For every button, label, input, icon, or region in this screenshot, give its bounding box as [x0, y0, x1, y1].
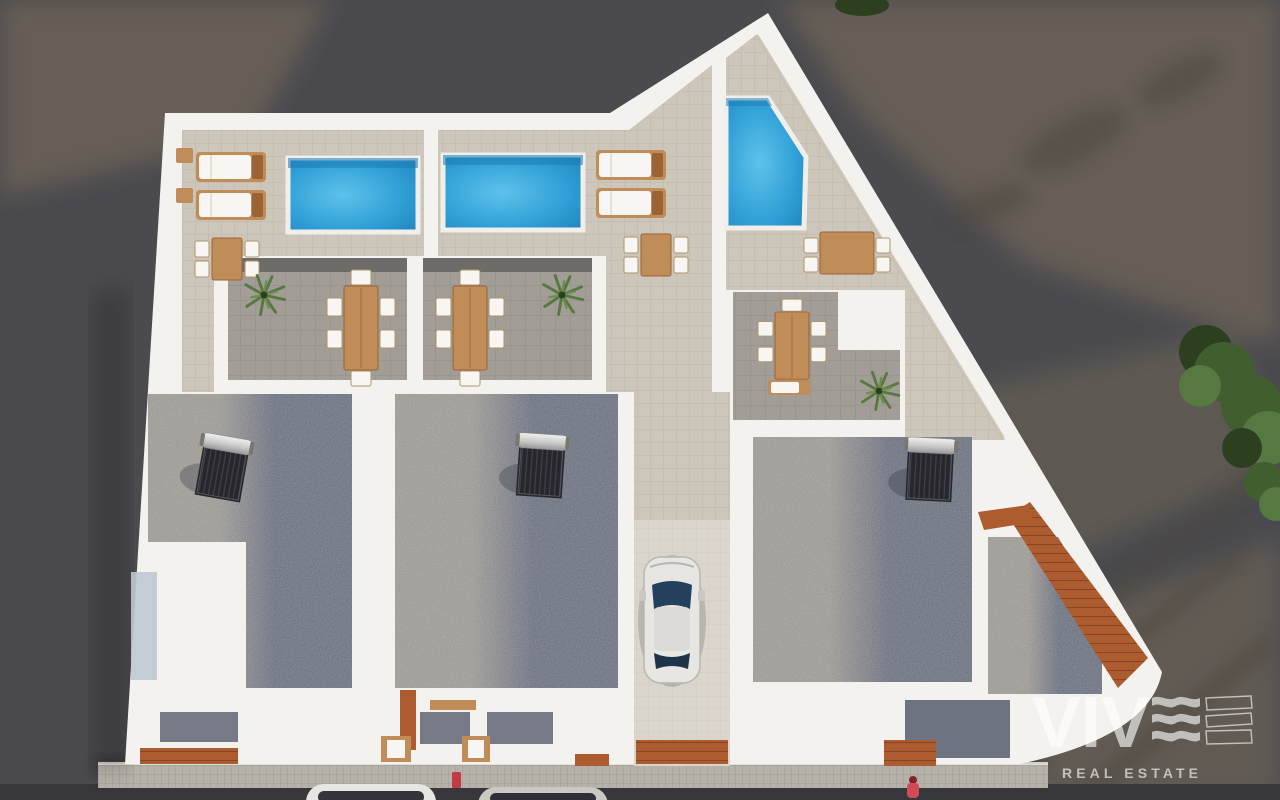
street-car-silver	[478, 787, 608, 800]
triple-wave-e-icon	[1152, 697, 1200, 742]
garage-wood-gate	[636, 740, 728, 764]
street-car-white	[306, 784, 436, 800]
lower-terrace-villa2	[423, 272, 592, 380]
roof-villa2	[395, 394, 618, 688]
bench-villa3	[768, 380, 810, 395]
sidewalk	[98, 764, 1048, 788]
pool-1	[288, 158, 418, 232]
fire-hydrant	[452, 772, 461, 788]
courtyard	[634, 392, 730, 522]
outdoor-table-villa3	[804, 232, 890, 274]
tagline-text: REAL ESTATE	[1062, 765, 1198, 781]
pool-2	[443, 155, 583, 230]
building-west-shadow	[92, 290, 130, 770]
terrace2-step-shadow	[423, 258, 592, 272]
glass-facade-panel	[131, 572, 157, 680]
parked-car	[638, 555, 706, 687]
lower-terrace-villa1	[228, 272, 407, 380]
brand-text: VIV	[1032, 683, 1150, 763]
aerial-render: VIV REAL ESTATE	[0, 0, 1280, 800]
